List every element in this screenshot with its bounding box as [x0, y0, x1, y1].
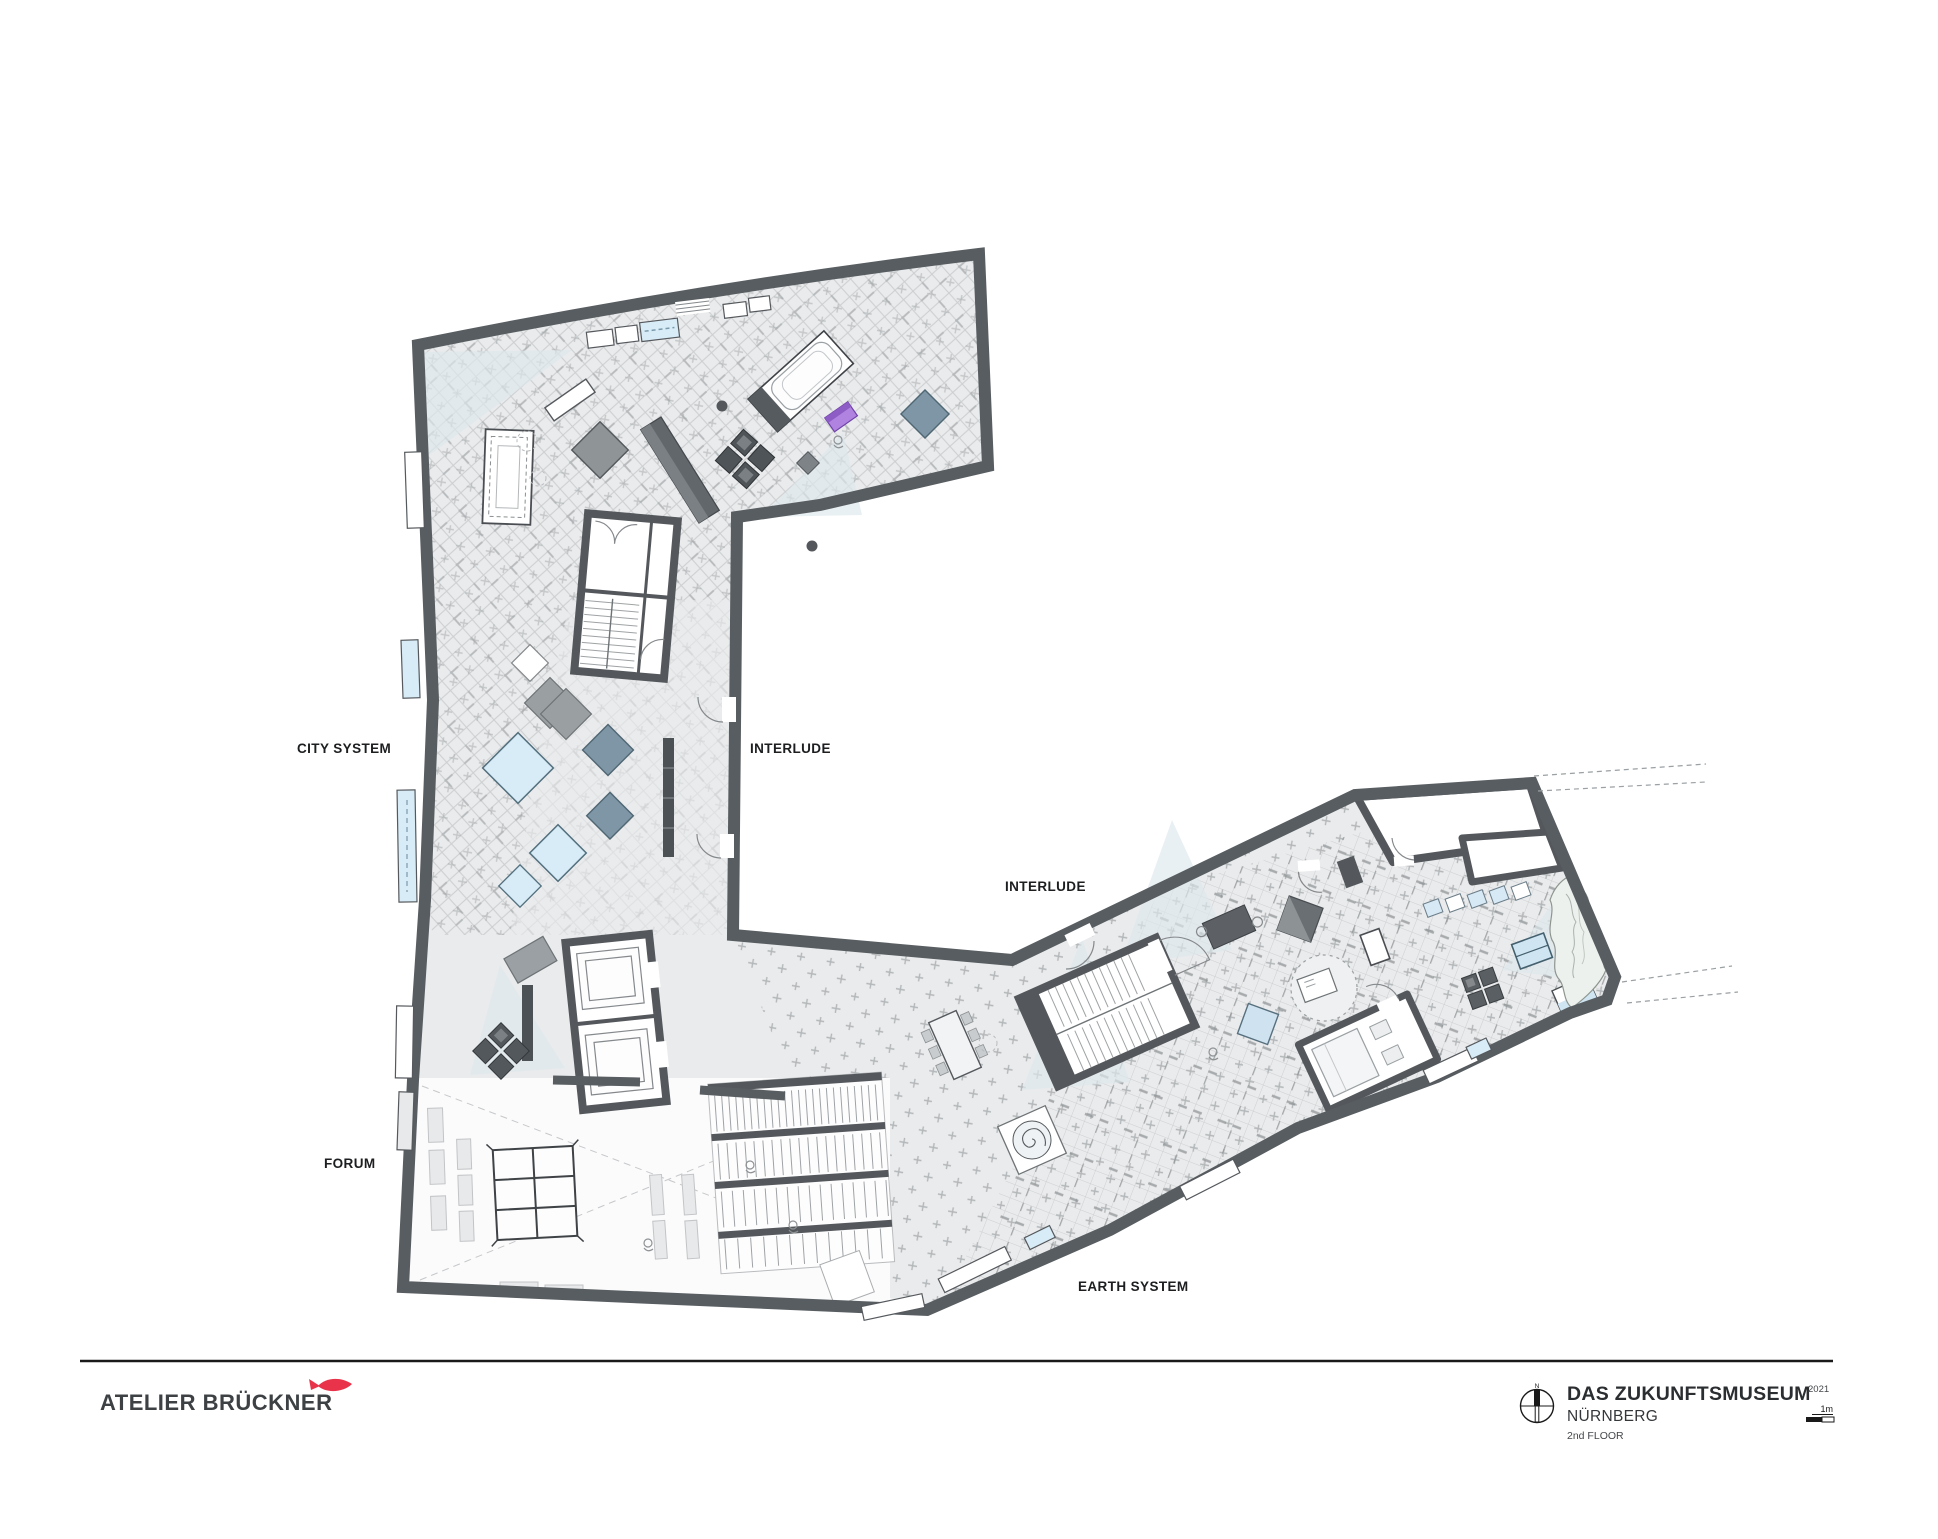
interactive-circle	[1291, 955, 1357, 1021]
project-city: NÜRNBERG	[1567, 1407, 1658, 1425]
project-title: DAS ZUKUNFTSMUSEUM	[1567, 1383, 1811, 1405]
footer: ATELIER BRÜCKNER N DAS ZUKUNFTSMUSEUM 20…	[80, 1361, 1834, 1442]
forum-grid-table	[486, 1140, 583, 1247]
label-interlude-1: INTERLUDE	[750, 741, 831, 756]
floor-plan-sheet: CITY SYSTEM INTERLUDE INTERLUDE FORUM EA…	[0, 0, 1938, 1539]
floor-plan-drawing: CITY SYSTEM INTERLUDE INTERLUDE FORUM EA…	[0, 0, 1938, 1539]
project-floor: 2nd FLOOR	[1567, 1430, 1624, 1442]
north-arrow-icon: N	[1521, 1383, 1554, 1423]
forum-room	[403, 1072, 927, 1308]
north-label: N	[1535, 1383, 1540, 1390]
label-city-system: CITY SYSTEM	[297, 741, 391, 756]
label-interlude-2: INTERLUDE	[1005, 879, 1086, 894]
scale-bar: 1m	[1806, 1404, 1834, 1422]
title-block: N DAS ZUKUNFTSMUSEUM 2021 NÜRNBERG 2nd F…	[1521, 1383, 1835, 1442]
studio-name: ATELIER BRÜCKNER	[100, 1390, 332, 1415]
forum-steps	[708, 1072, 895, 1274]
project-year: 2021	[1808, 1384, 1829, 1395]
stair-elevator-core-upper	[574, 513, 677, 678]
label-earth-system: EARTH SYSTEM	[1078, 1279, 1189, 1294]
label-forum: FORUM	[324, 1156, 376, 1171]
city-model-pool	[482, 429, 533, 525]
studio-logo: ATELIER BRÜCKNER	[100, 1379, 352, 1415]
scale-label: 1m	[1820, 1404, 1833, 1414]
